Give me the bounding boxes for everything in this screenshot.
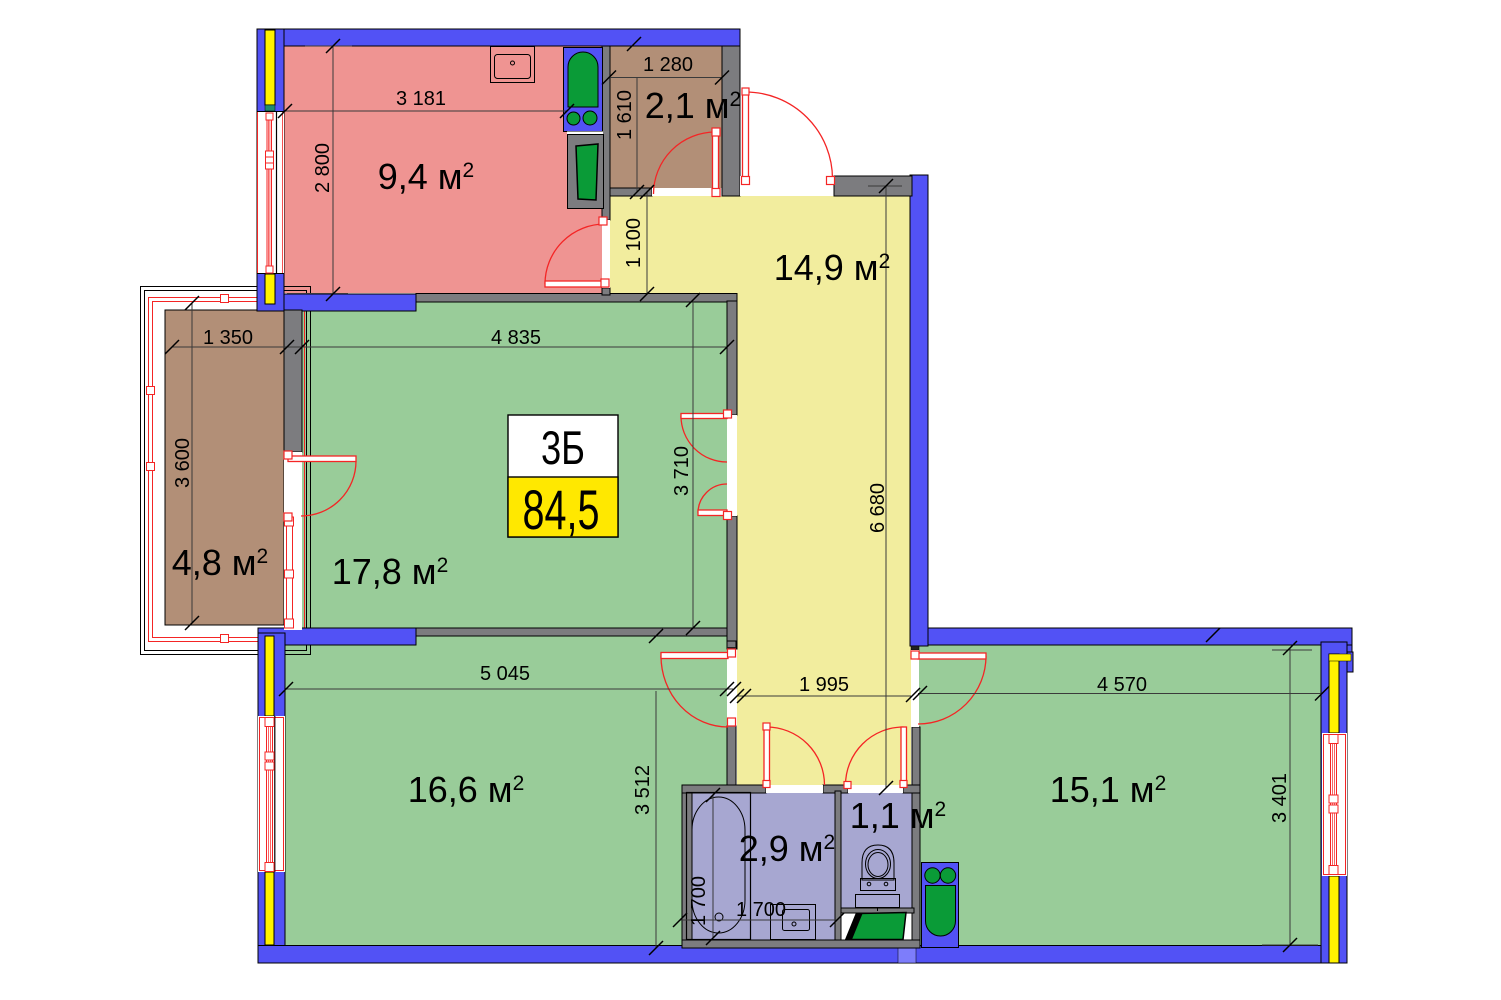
svg-text:1 700: 1 700 bbox=[688, 876, 710, 926]
svg-text:1 700: 1 700 bbox=[736, 899, 786, 921]
svg-text:3 181: 3 181 bbox=[396, 88, 446, 110]
svg-text:3 401: 3 401 bbox=[1269, 773, 1291, 823]
svg-text:6 680: 6 680 bbox=[867, 483, 889, 533]
svg-text:3 710: 3 710 bbox=[671, 446, 693, 496]
svg-text:2 800: 2 800 bbox=[312, 143, 334, 193]
svg-text:1 995: 1 995 bbox=[799, 674, 849, 696]
svg-text:1 610: 1 610 bbox=[614, 90, 636, 140]
svg-text:3Б: 3Б bbox=[541, 421, 585, 474]
svg-text:14,9 м2: 14,9 м2 bbox=[774, 247, 891, 288]
svg-text:5 045: 5 045 bbox=[480, 663, 530, 685]
svg-text:1 280: 1 280 bbox=[643, 54, 693, 76]
svg-text:17,8 м2: 17,8 м2 bbox=[332, 551, 449, 592]
svg-text:3 600: 3 600 bbox=[172, 438, 194, 488]
svg-text:3 512: 3 512 bbox=[632, 765, 654, 815]
svg-text:4 835: 4 835 bbox=[491, 327, 541, 349]
svg-text:2,9 м2: 2,9 м2 bbox=[739, 828, 835, 869]
svg-text:15,1 м2: 15,1 м2 bbox=[1050, 769, 1167, 810]
svg-text:1,1 м2: 1,1 м2 bbox=[850, 795, 946, 836]
svg-text:2,1 м2: 2,1 м2 bbox=[645, 85, 741, 126]
svg-text:9,4 м2: 9,4 м2 bbox=[378, 156, 474, 197]
svg-text:84,5: 84,5 bbox=[523, 478, 600, 541]
svg-text:16,6 м2: 16,6 м2 bbox=[408, 769, 525, 810]
svg-text:4,8 м2: 4,8 м2 bbox=[172, 542, 268, 583]
svg-text:1 100: 1 100 bbox=[623, 218, 645, 268]
svg-text:4 570: 4 570 bbox=[1097, 674, 1147, 696]
svg-text:1 350: 1 350 bbox=[203, 327, 253, 349]
